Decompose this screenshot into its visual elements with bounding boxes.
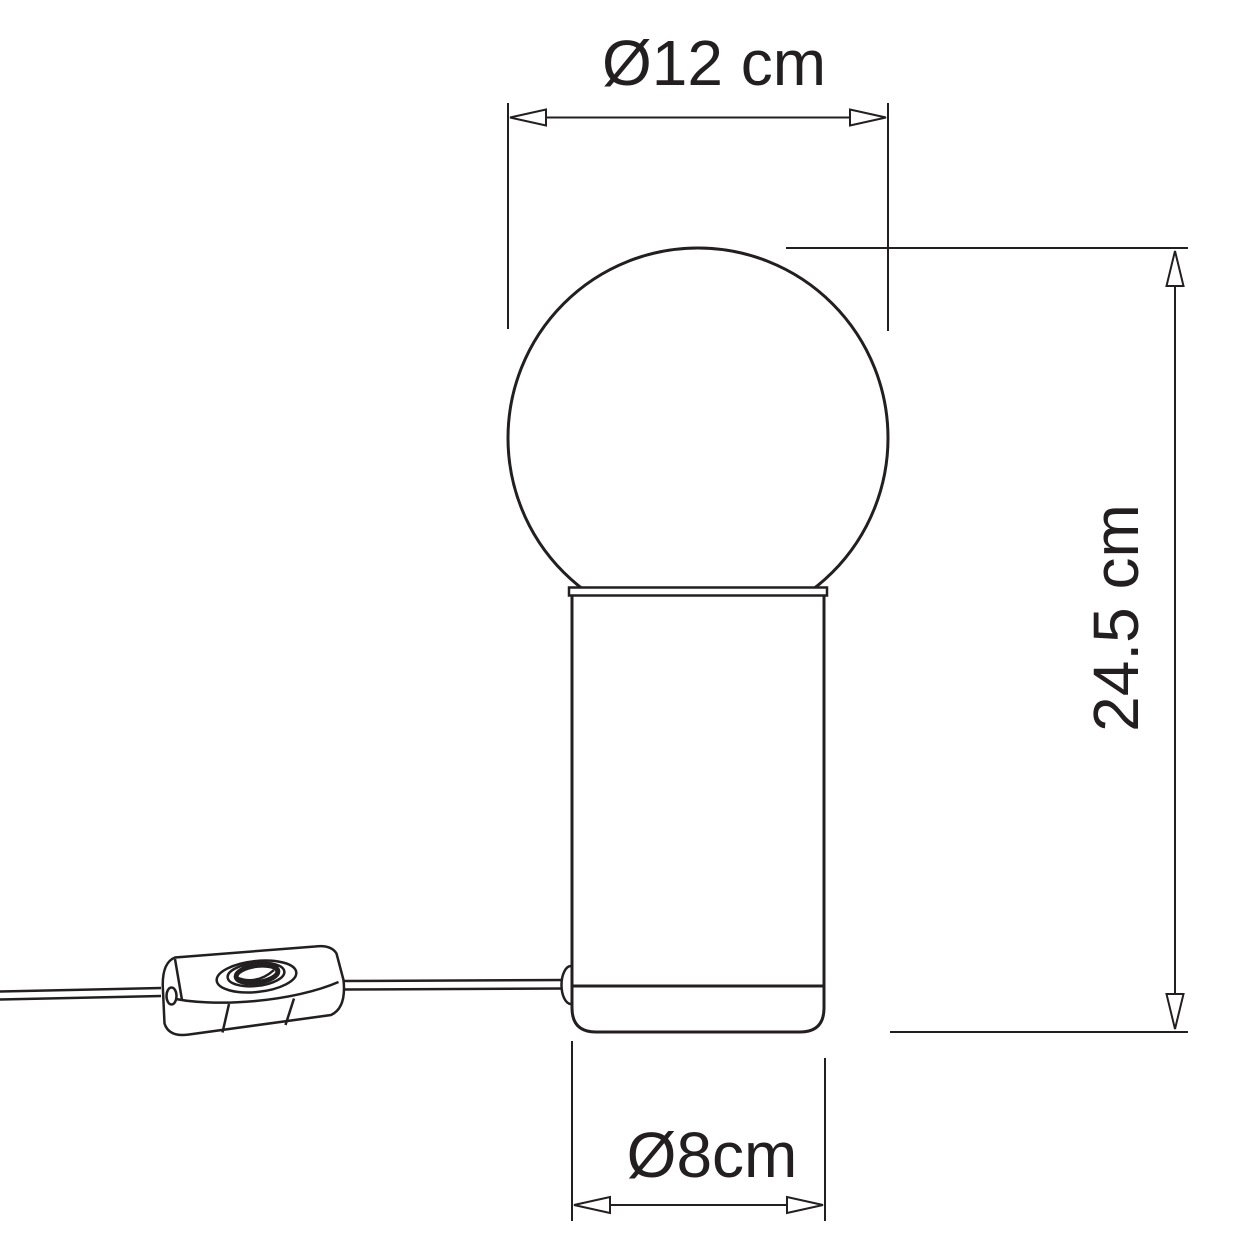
arrowhead-down [1167, 994, 1184, 1029]
cord-line [0, 996, 161, 1000]
overall-height-label: 24.5 cm [1084, 504, 1148, 732]
power-cord-left [0, 988, 161, 1000]
lamp-dimension-drawing: Ø12 cm 24.5 cm Ø8cm [0, 0, 1240, 1240]
arrowhead-right [787, 1197, 823, 1213]
arrowhead-left [574, 1197, 610, 1213]
arrowhead-right [850, 110, 886, 126]
lamp-base-body [572, 592, 824, 1032]
technical-line-art [0, 0, 1240, 1240]
arrowhead-left [510, 110, 546, 126]
lamp-base-top-rim [569, 588, 827, 596]
bulb-sphere-outline [508, 248, 888, 628]
power-cord-right [341, 980, 564, 990]
bulb-diameter-label: Ø12 cm [602, 31, 826, 95]
cord-line [0, 988, 161, 992]
arrowhead-up [1167, 251, 1184, 286]
inline-switch [163, 946, 344, 1035]
base-diameter-label: Ø8cm [627, 1123, 798, 1187]
cord-line [341, 980, 564, 981]
cord-line [341, 989, 564, 990]
switch-cord-hole [167, 988, 177, 1005]
